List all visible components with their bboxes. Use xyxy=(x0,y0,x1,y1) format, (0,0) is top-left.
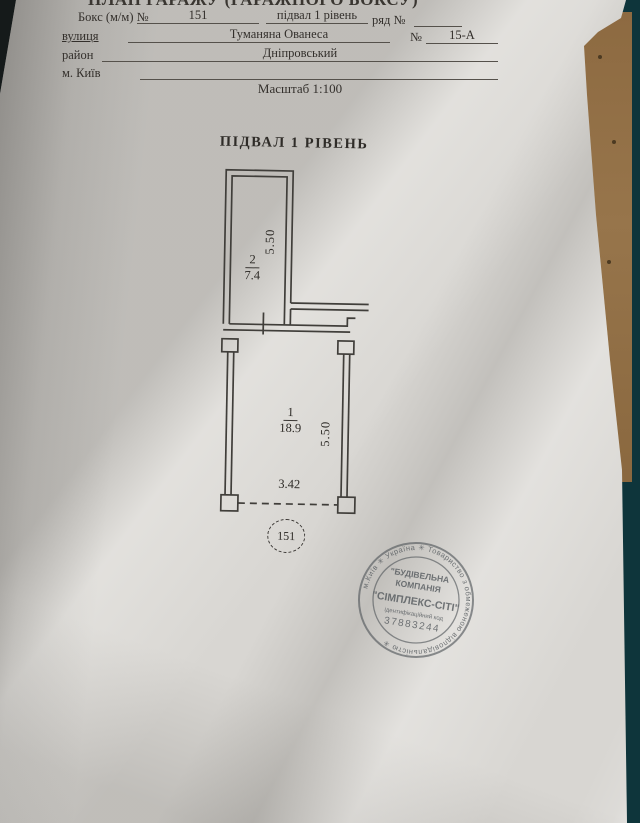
room2-depth-dim: 5.50 xyxy=(263,204,279,254)
plan-drawing xyxy=(196,158,404,572)
room1-label: 1 18.9 xyxy=(270,406,311,436)
room2-area: 7.4 xyxy=(235,268,269,283)
room2-label: 2 7.4 xyxy=(235,253,270,283)
plan-title: ПІДВАЛ 1 РІВЕНЬ xyxy=(220,134,369,154)
room1-depth-dim: 5.50 xyxy=(318,397,334,447)
room1-area: 18.9 xyxy=(270,421,310,436)
company-stamp: м.Київ ✳ Україна ✳ Товариство з обмежено… xyxy=(352,538,482,668)
room2-number: 2 xyxy=(245,253,260,268)
photo-of-document: ПЛАН ГАРАЖУ (ГАРАЖНОГО БОКСУ) Бокс (м/м)… xyxy=(0,0,640,823)
room1-width-dim: 3.42 xyxy=(265,477,313,493)
room1-number: 1 xyxy=(283,406,298,421)
document-content: ПЛАН ГАРАЖУ (ГАРАЖНОГО БОКСУ) Бокс (м/м)… xyxy=(0,0,640,823)
box-number-text: 151 xyxy=(277,528,295,543)
floor-plan: ПІДВАЛ 1 РІВЕНЬ xyxy=(0,0,640,823)
